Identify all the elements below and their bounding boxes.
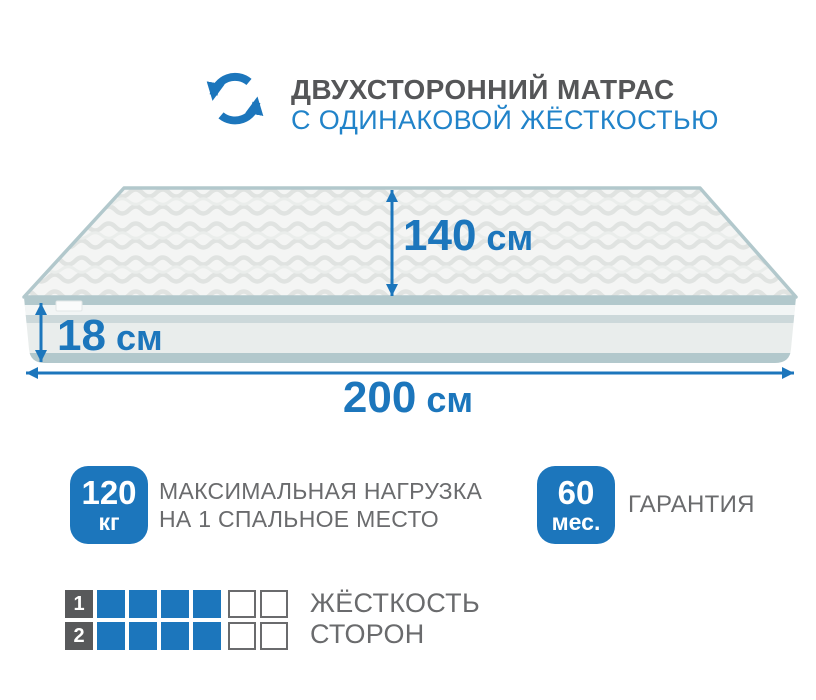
width-dimension-label: 140см: [403, 214, 533, 258]
warranty-label: ГАРАНТИЯ: [628, 466, 755, 544]
page-subtitle: С ОДИНАКОВОЙ ЖЁСТКОСТЬЮ: [291, 105, 719, 136]
length-dimension-label: 200см: [0, 376, 816, 420]
warranty-badge: 60 мес.: [537, 466, 615, 544]
firmness-filled-cell: [129, 622, 157, 650]
firmness-empty-cell: [228, 622, 256, 650]
width-unit: см: [486, 217, 533, 258]
firmness-cells-side-2: [97, 622, 288, 650]
warranty-label-line1: ГАРАНТИЯ: [628, 491, 755, 519]
max-load-label-line1: МАКСИМАЛЬНАЯ НАГРУЗКА: [159, 477, 482, 505]
firmness-filled-cell: [161, 622, 189, 650]
firmness-row-side-2: 2: [65, 622, 288, 650]
firmness-filled-cell: [129, 590, 157, 618]
length-value: 200: [343, 373, 416, 422]
max-load-label-line2: НА 1 СПАЛЬНОЕ МЕСТО: [159, 505, 482, 533]
firmness-filled-cell: [161, 590, 189, 618]
firmness-cells-side-1: [97, 590, 288, 618]
mattress-infographic: ДВУХСТОРОННИЙ МАТРАС С ОДИНАКОВОЙ ЖЁСТКО…: [0, 0, 816, 700]
firmness-filled-cell: [97, 622, 125, 650]
height-unit: см: [116, 317, 163, 358]
rotate-icon: [202, 63, 268, 133]
firmness-empty-cell: [228, 590, 256, 618]
max-load-badge: 120 кг: [70, 466, 148, 544]
firmness-empty-cell: [260, 622, 288, 650]
page-title: ДВУХСТОРОННИЙ МАТРАС: [291, 74, 675, 106]
height-dimension-label: 18см: [57, 314, 163, 358]
warranty-unit: мес.: [552, 510, 601, 534]
firmness-label: ЖЁСТКОСТЬ СТОРОН: [310, 588, 480, 650]
max-load-label: МАКСИМАЛЬНАЯ НАГРУЗКА НА 1 СПАЛЬНОЕ МЕСТ…: [159, 466, 482, 544]
firmness-filled-cell: [97, 590, 125, 618]
firmness-filled-cell: [193, 590, 221, 618]
firmness-empty-cell: [260, 590, 288, 618]
firmness-row-side-1: 1: [65, 590, 288, 618]
side-number-badge: 2: [65, 622, 93, 650]
length-unit: см: [426, 379, 473, 420]
width-value: 140: [403, 211, 476, 260]
height-value: 18: [57, 311, 106, 360]
max-load-unit: кг: [98, 510, 119, 534]
firmness-filled-cell: [193, 622, 221, 650]
mattress-top-piping: [24, 296, 796, 305]
max-load-value: 120: [81, 476, 136, 510]
mattress-tag: [56, 301, 82, 311]
firmness-scale: 1 2: [65, 590, 288, 654]
firmness-label-line1: ЖЁСТКОСТЬ: [310, 588, 480, 619]
firmness-label-line2: СТОРОН: [310, 619, 480, 650]
warranty-value: 60: [558, 476, 595, 510]
side-number-badge: 1: [65, 590, 93, 618]
